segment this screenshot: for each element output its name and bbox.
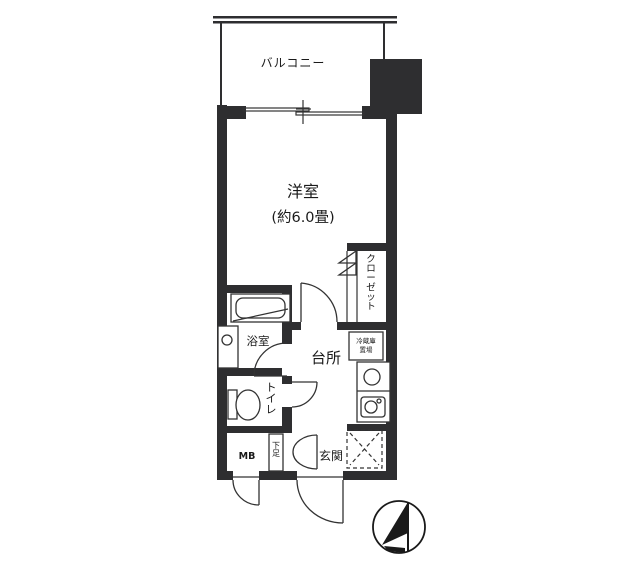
toilet-door — [292, 382, 317, 407]
bottom-wall-a — [217, 471, 233, 480]
kitchen-label: 台所 — [311, 349, 341, 367]
mid-vertical-wall-b — [282, 376, 292, 384]
compass — [373, 501, 425, 553]
washbasin — [218, 326, 238, 368]
meter-box-label: MB — [239, 451, 256, 462]
room-bottom-wall-left — [282, 322, 301, 330]
room-bottom-wall-right — [337, 322, 397, 330]
bottom-wall-b — [259, 471, 297, 480]
sliding-window — [243, 100, 364, 124]
toilet-label: トイレ — [266, 381, 277, 416]
stove-burner-icon — [365, 401, 377, 413]
bottom-wall-c — [343, 471, 397, 480]
shoe-box: 下足 — [269, 434, 283, 471]
window-pane-right — [296, 112, 364, 115]
main-room-size-label: (約6.0畳) — [271, 209, 334, 226]
balcony-right-wall — [383, 23, 385, 61]
mid-vertical-wall-c — [282, 407, 292, 433]
toilet-bowl — [236, 390, 260, 420]
room-door-arc — [301, 283, 337, 322]
balcony: バルコニー — [213, 16, 397, 105]
bathroom: 浴室 — [218, 294, 290, 376]
meter-box: MB — [233, 451, 259, 505]
toilet: トイレ — [228, 381, 317, 420]
fridge-label-line2: 置場 — [360, 345, 374, 354]
sink-icon — [364, 369, 380, 385]
stove-knob-icon — [377, 399, 381, 403]
structural-column — [370, 59, 422, 114]
closet-label: クローゼット — [366, 254, 376, 313]
toilet-door-arc — [292, 382, 317, 407]
toilet-bottom-wall — [227, 426, 283, 433]
fold-door-arc-top — [293, 435, 317, 452]
balcony-outer-edge-line2 — [213, 21, 397, 24]
fold-door-arc-bottom — [293, 452, 317, 469]
balcony-left-wall — [220, 23, 222, 105]
left-wall — [217, 105, 227, 480]
kitchen: 台所 冷蔵庫 置場 — [311, 332, 390, 422]
washbasin-bowl-icon — [222, 335, 232, 345]
front-door-arc — [297, 480, 343, 523]
closet: クローゼット — [339, 251, 376, 322]
floor-plan-drawing: バルコニー 洋室 (約6.0畳) — [0, 0, 640, 569]
meter-box-door — [233, 477, 259, 505]
floor-plan: バルコニー 洋室 (約6.0畳) — [0, 0, 640, 569]
room-door — [301, 283, 337, 322]
north-needle-icon — [382, 502, 408, 545]
kitchen-entrance-fold-door — [293, 435, 317, 469]
meter-box-door-arc — [233, 480, 259, 505]
entrance-label: 玄関 — [319, 448, 343, 463]
main-room-label: 洋室 — [287, 182, 319, 201]
closet-top-wall — [347, 243, 397, 251]
balcony-outer-edge-line — [213, 16, 397, 19]
bathroom-label: 浴室 — [247, 334, 270, 348]
shoe-box-label: 下足 — [272, 441, 280, 458]
fridge-label-line1: 冷蔵庫 — [356, 336, 376, 345]
balcony-label: バルコニー — [261, 56, 326, 70]
front-door — [297, 477, 343, 523]
